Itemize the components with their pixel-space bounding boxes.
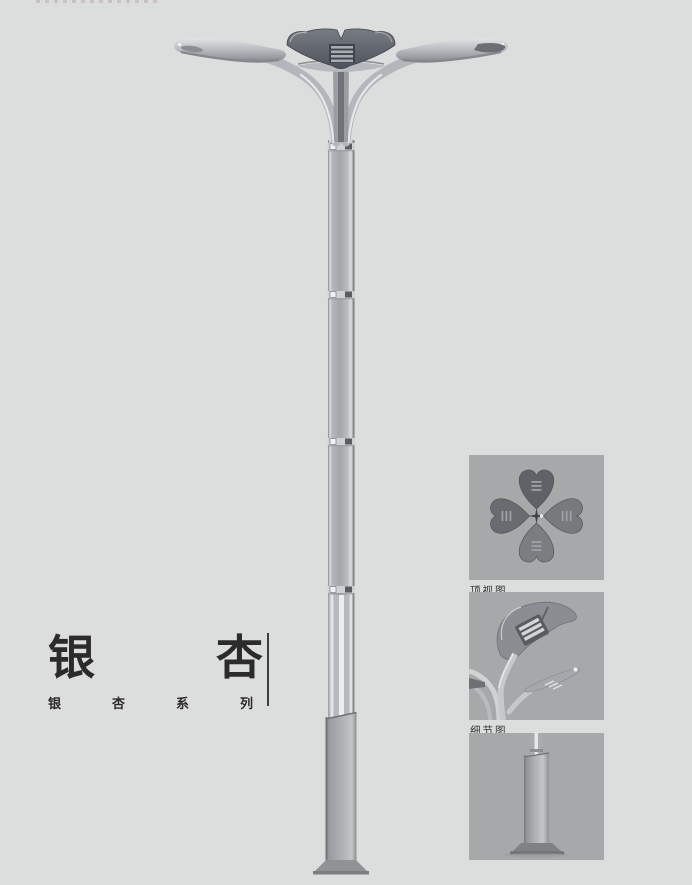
detail-view-image xyxy=(469,592,604,720)
thumbnail-top-view: 顶视图 xyxy=(469,455,604,595)
series-char: 系 xyxy=(176,693,189,712)
louver-grille xyxy=(329,44,355,63)
pole-twin-tube-segment xyxy=(329,595,355,717)
right-lamp-fixture xyxy=(396,38,508,63)
lamp-head xyxy=(287,29,395,142)
product-series-subtitle: 银 杏 系 列 xyxy=(48,693,253,712)
thumbnail-label xyxy=(469,860,604,875)
pole-joint xyxy=(328,438,356,447)
product-title-block: 银 杏 银 杏 系 列 xyxy=(48,631,263,712)
pole-joint xyxy=(328,586,356,595)
title-divider-line xyxy=(267,633,269,706)
left-lamp-fixture xyxy=(174,38,286,63)
thumbnail-base-view xyxy=(469,733,604,875)
title-char: 杏 xyxy=(216,631,263,686)
title-char: 银 xyxy=(48,631,95,686)
pole-base-column xyxy=(326,713,357,864)
top-view-image xyxy=(469,455,604,580)
series-char: 杏 xyxy=(112,693,125,712)
product-title: 银 杏 xyxy=(48,631,263,686)
series-char: 银 xyxy=(48,693,61,712)
base-view-image xyxy=(469,733,604,860)
catalog-page: 银 杏 银 杏 系 列 xyxy=(0,0,692,885)
base-plate xyxy=(313,860,369,875)
base-view-column xyxy=(524,753,549,845)
pole-joint xyxy=(328,143,356,152)
series-char: 列 xyxy=(240,693,253,712)
thumbnail-column: 顶视图 xyxy=(469,455,604,875)
pole-joint xyxy=(328,291,356,300)
thumbnail-detail-view: 细节图 xyxy=(469,592,604,735)
